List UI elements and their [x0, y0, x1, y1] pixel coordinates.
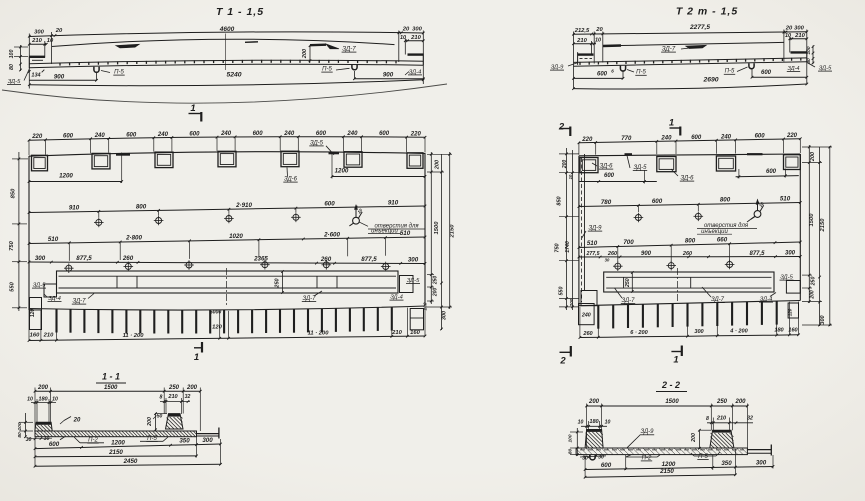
svg-text:32: 32	[747, 415, 753, 421]
svg-text:200: 200	[186, 385, 198, 391]
svg-text:ЗД-7: ЗД-7	[302, 296, 316, 302]
svg-text:220: 220	[410, 131, 422, 137]
svg-text:200: 200	[37, 385, 49, 391]
svg-text:П-5: П-5	[698, 454, 708, 460]
svg-text:4 · 200: 4 · 200	[729, 328, 748, 334]
svg-text:550: 550	[559, 287, 565, 296]
svg-text:ЗД-9: ЗД-9	[640, 429, 654, 435]
svg-text:300: 300	[412, 27, 422, 33]
svg-text:900: 900	[383, 72, 394, 79]
svg-text:ЗД-4: ЗД-4	[788, 66, 800, 72]
svg-text:2 - 2: 2 - 2	[661, 380, 680, 390]
svg-text:260: 260	[122, 255, 134, 262]
svg-text:200: 200	[810, 290, 816, 300]
svg-text:250: 250	[625, 278, 631, 288]
svg-text:1200: 1200	[59, 173, 73, 180]
svg-text:660: 660	[717, 237, 728, 244]
svg-text:300: 300	[35, 255, 46, 262]
svg-text:1500: 1500	[809, 213, 815, 227]
svg-text:ЗД-5: ЗД-5	[33, 283, 46, 289]
svg-text:750: 750	[555, 243, 561, 252]
svg-text:600: 600	[597, 71, 608, 77]
svg-text:ЗД-6: ЗД-6	[599, 164, 613, 170]
svg-text:2: 2	[559, 356, 566, 367]
svg-text:510: 510	[48, 236, 59, 243]
svg-text:6 · 200: 6 · 200	[630, 330, 648, 336]
svg-text:800: 800	[720, 197, 731, 204]
svg-text:1740: 1740	[565, 241, 571, 253]
svg-text:210: 210	[167, 394, 178, 400]
svg-text:600: 600	[604, 173, 615, 179]
svg-text:240: 240	[581, 313, 591, 319]
svg-text:210: 210	[43, 332, 54, 338]
svg-text:20: 20	[73, 418, 81, 424]
svg-text:877,5: 877,5	[749, 251, 765, 257]
svg-text:10: 10	[568, 174, 573, 179]
svg-text:1: 1	[673, 355, 678, 366]
svg-text:600: 600	[601, 462, 612, 469]
svg-text:900: 900	[54, 73, 65, 80]
svg-text:120: 120	[788, 308, 793, 316]
svg-text:160: 160	[788, 327, 798, 333]
svg-text:120: 120	[30, 309, 36, 318]
svg-text:ЗД-5: ЗД-5	[819, 66, 832, 72]
svg-text:1: 1	[194, 352, 199, 363]
svg-text:210: 210	[391, 330, 402, 336]
svg-text:2·600: 2·600	[323, 231, 340, 238]
svg-text:ЗД-5: ЗД-5	[780, 275, 793, 281]
svg-text:350: 350	[179, 438, 190, 445]
svg-text:240: 240	[94, 133, 106, 139]
svg-text:1: 1	[190, 103, 195, 114]
svg-text:250: 250	[275, 278, 281, 288]
svg-text:1200: 1200	[111, 439, 125, 446]
svg-text:210: 210	[31, 38, 42, 44]
svg-text:300: 300	[820, 315, 826, 324]
svg-text:2150: 2150	[450, 224, 456, 239]
svg-text:120: 120	[423, 302, 429, 310]
svg-text:ЗД-5: ЗД-5	[407, 278, 420, 284]
svg-text:2277,5: 2277,5	[689, 24, 710, 31]
svg-text:2150: 2150	[659, 468, 674, 475]
svg-text:210: 210	[410, 35, 421, 41]
svg-text:80: 80	[568, 449, 574, 455]
svg-text:ЗД-7: ЗД-7	[662, 46, 676, 53]
svg-text:ЗД-7: ЗД-7	[621, 298, 635, 304]
svg-text:Т 2 т - 1,5: Т 2 т - 1,5	[676, 6, 738, 18]
svg-text:220: 220	[31, 134, 43, 140]
svg-text:877,5: 877,5	[76, 255, 92, 262]
svg-text:1020: 1020	[229, 233, 243, 240]
svg-text:240: 240	[720, 134, 732, 140]
svg-text:10: 10	[578, 420, 584, 426]
svg-text:10: 10	[47, 38, 54, 44]
svg-text:ЗД-7: ЗД-7	[711, 297, 725, 303]
svg-text:600: 600	[761, 70, 772, 76]
svg-text:50: 50	[157, 414, 163, 420]
svg-text:600: 600	[49, 441, 60, 448]
svg-text:ЗД-6: ЗД-6	[284, 177, 298, 183]
svg-text:20: 20	[402, 27, 410, 33]
svg-text:600: 600	[691, 135, 702, 141]
svg-text:100: 100	[568, 434, 574, 442]
svg-text:200: 200	[588, 399, 600, 405]
svg-text:600: 600	[379, 131, 390, 137]
svg-text:180: 180	[589, 419, 599, 425]
svg-text:250: 250	[168, 385, 180, 391]
svg-text:80: 80	[806, 58, 812, 64]
svg-text:300: 300	[785, 251, 796, 257]
svg-text:600: 600	[755, 134, 766, 140]
svg-text:ЗД-4: ЗД-4	[390, 295, 403, 301]
svg-text:240: 240	[346, 131, 358, 137]
svg-text:250: 250	[811, 277, 817, 287]
svg-text:11 · 200: 11 · 200	[123, 333, 145, 339]
svg-text:ЗД-4: ЗД-4	[48, 296, 61, 302]
svg-text:300: 300	[202, 437, 213, 444]
svg-text:134: 134	[31, 72, 40, 78]
svg-text:240: 240	[157, 132, 169, 138]
svg-text:510: 510	[587, 240, 598, 247]
svg-text:510: 510	[780, 196, 791, 203]
svg-text:800: 800	[685, 238, 696, 245]
svg-text:210: 210	[716, 415, 727, 421]
svg-text:1500: 1500	[434, 221, 440, 235]
svg-text:2450: 2450	[123, 458, 138, 465]
svg-text:600: 600	[126, 132, 137, 138]
svg-text:200: 200	[734, 399, 746, 405]
svg-text:260: 260	[682, 251, 692, 257]
svg-text:30: 30	[26, 437, 32, 443]
svg-text:300: 300	[794, 25, 804, 31]
svg-text:ЗД-5: ЗД-5	[310, 140, 324, 146]
svg-text:10: 10	[27, 396, 33, 402]
svg-text:600: 600	[189, 132, 200, 138]
svg-text:ЗД-9: ЗД-9	[551, 65, 564, 71]
svg-text:20: 20	[785, 25, 793, 31]
svg-text:200: 200	[435, 160, 441, 170]
svg-text:200: 200	[302, 49, 308, 59]
svg-text:180: 180	[38, 396, 48, 402]
svg-text:200: 200	[147, 417, 153, 427]
svg-text:600: 600	[324, 200, 335, 207]
svg-text:100: 100	[9, 50, 15, 59]
svg-text:277,5: 277,5	[586, 251, 600, 257]
svg-text:1: 1	[669, 118, 674, 129]
svg-text:1200: 1200	[662, 461, 676, 468]
svg-text:100: 100	[806, 46, 812, 54]
svg-text:ЗД-4: ЗД-4	[409, 69, 422, 75]
svg-text:260: 260	[607, 251, 617, 257]
svg-text:900: 900	[641, 251, 652, 257]
svg-text:ЗД-7: ЗД-7	[342, 46, 356, 53]
svg-text:910: 910	[69, 205, 80, 212]
svg-text:770: 770	[621, 136, 632, 142]
svg-text:850: 850	[557, 196, 563, 205]
svg-text:ЗД-5: ЗД-5	[8, 79, 21, 85]
svg-text:300: 300	[694, 329, 704, 335]
svg-text:20: 20	[55, 28, 63, 34]
svg-text:300: 300	[441, 311, 447, 320]
svg-text:2·910: 2·910	[235, 202, 252, 209]
svg-text:600: 600	[652, 198, 663, 205]
svg-text:30: 30	[605, 258, 610, 263]
svg-text:2·800: 2·800	[125, 235, 142, 242]
svg-text:800: 800	[136, 204, 147, 211]
svg-text:300: 300	[408, 256, 419, 263]
svg-text:300: 300	[34, 30, 44, 36]
svg-text:200: 200	[562, 160, 568, 170]
svg-text:750: 750	[9, 240, 15, 250]
svg-text:20: 20	[595, 27, 603, 33]
svg-text:ЗД-6: ЗД-6	[680, 176, 694, 182]
svg-text:80: 80	[17, 432, 23, 438]
svg-text:8: 8	[160, 394, 163, 400]
svg-text:600: 600	[766, 169, 777, 175]
svg-text:600: 600	[63, 134, 74, 140]
svg-text:260: 260	[582, 331, 593, 337]
svg-text:11 · 200: 11 · 200	[308, 331, 330, 337]
svg-text:200: 200	[810, 152, 816, 162]
svg-text:1500: 1500	[665, 399, 679, 405]
svg-text:10: 10	[595, 37, 601, 43]
svg-text:180: 180	[774, 328, 784, 334]
svg-text:220: 220	[786, 133, 798, 139]
svg-text:200: 200	[569, 298, 574, 307]
svg-text:ЗД-7: ЗД-7	[72, 299, 86, 305]
svg-text:210: 210	[794, 33, 805, 39]
svg-text:240: 240	[660, 135, 672, 141]
svg-text:10: 10	[52, 396, 58, 402]
svg-text:910: 910	[388, 199, 399, 206]
svg-text:350: 350	[721, 460, 732, 467]
svg-text:П-5: П-5	[636, 70, 646, 76]
svg-text:210: 210	[576, 38, 587, 44]
svg-text:200: 200	[691, 433, 697, 443]
svg-text:212,5: 212,5	[574, 28, 590, 34]
svg-text:160: 160	[410, 330, 420, 336]
svg-text:700: 700	[623, 239, 634, 246]
svg-text:850: 850	[11, 188, 17, 198]
svg-text:300: 300	[756, 460, 767, 467]
svg-text:600: 600	[316, 131, 327, 137]
svg-text:510: 510	[400, 230, 411, 237]
svg-text:220: 220	[581, 137, 593, 143]
svg-text:ЗД-9: ЗД-9	[588, 226, 602, 232]
svg-text:160: 160	[30, 332, 40, 338]
svg-text:550: 550	[10, 281, 16, 291]
svg-text:877,5: 877,5	[361, 256, 377, 263]
svg-text:32: 32	[185, 394, 191, 400]
svg-text:780: 780	[601, 199, 612, 206]
svg-text:П-5: П-5	[725, 69, 735, 75]
svg-text:П-5: П-5	[114, 70, 124, 76]
svg-text:П-2: П-2	[642, 455, 652, 461]
svg-text:8: 8	[706, 416, 709, 422]
svg-text:2150: 2150	[108, 449, 123, 456]
svg-text:4600: 4600	[219, 26, 235, 33]
svg-text:80: 80	[9, 64, 15, 70]
svg-text:30: 30	[598, 454, 604, 460]
svg-text:250: 250	[433, 276, 439, 286]
svg-text:5240: 5240	[226, 72, 241, 79]
svg-text:10: 10	[605, 420, 611, 426]
svg-text:П-5: П-5	[322, 67, 332, 73]
svg-text:120: 120	[212, 324, 222, 330]
svg-text:ЗД-5: ЗД-5	[633, 165, 647, 171]
svg-text:240: 240	[283, 131, 295, 137]
svg-text:250: 250	[716, 399, 728, 405]
svg-text:100: 100	[17, 422, 23, 430]
svg-text:1200: 1200	[335, 167, 349, 174]
svg-text:600: 600	[253, 131, 264, 137]
svg-text:200: 200	[433, 288, 439, 298]
svg-text:2150: 2150	[820, 218, 826, 233]
svg-text:2690: 2690	[702, 77, 718, 84]
svg-text:240: 240	[220, 131, 232, 137]
svg-text:1 - 1: 1 - 1	[102, 372, 120, 382]
svg-text:1500: 1500	[104, 385, 118, 391]
svg-text:Т 1 - 1,5: Т 1 - 1,5	[216, 6, 264, 18]
svg-text:2: 2	[558, 122, 565, 133]
